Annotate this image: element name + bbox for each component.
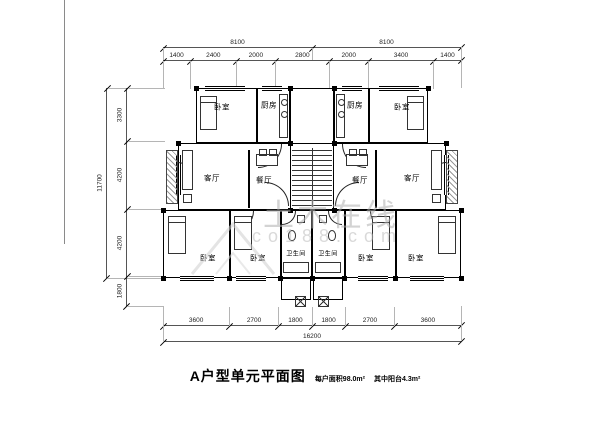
plan-title: A户型单元平面图 — [190, 366, 306, 386]
dim-segment: 8100 — [163, 47, 312, 48]
room-label-bedroom: 卧室 — [394, 102, 410, 113]
dim-label: 3600 — [395, 317, 461, 324]
window — [262, 86, 282, 91]
wall-bedroom-kitchen-divider-left — [256, 88, 258, 143]
dim-segment: 3400 — [368, 60, 434, 61]
dim-segment: 2000 — [329, 60, 368, 61]
sofa — [182, 150, 193, 190]
dim-label: 1800 — [279, 317, 312, 324]
dim-segment: 11700 — [106, 88, 107, 278]
dim-segment: 8100 — [312, 47, 461, 48]
dim-segment: 2000 — [237, 60, 276, 61]
dim-segment: 1400 — [163, 60, 190, 61]
room-label-dining: 餐厅 — [256, 175, 272, 186]
dim-segment: 3300 — [126, 88, 127, 141]
dim-segment: 1400 — [434, 60, 461, 61]
room-label-living: 客厅 — [204, 173, 220, 184]
dim-segment: 3600 — [395, 325, 461, 326]
dim-label: 1400 — [434, 52, 461, 59]
dim-label: 2800 — [275, 52, 329, 59]
bathtub — [315, 262, 341, 273]
floor-plan-drawing: 8100 8100 1400 2400 2000 2800 2000 3400 … — [0, 0, 610, 432]
title-block: A户型单元平面图 每户面积98.0m² 其中阳台4.3m² — [0, 366, 610, 386]
bed — [168, 216, 186, 254]
room-label-bedroom: 卧室 — [214, 102, 230, 113]
dim-label: 2700 — [345, 317, 395, 324]
room-label-bedroom: 卧室 — [408, 253, 424, 264]
dim-segment: 4200 — [126, 141, 127, 209]
sofa — [431, 150, 442, 190]
balcony-right — [446, 150, 458, 204]
kitchen-counter — [336, 94, 345, 138]
side-table — [183, 194, 192, 203]
dim-label: 2000 — [237, 52, 276, 59]
dining-table — [256, 154, 278, 166]
dim-label: 4200 — [117, 236, 124, 250]
dim-label: 4200 — [117, 168, 124, 182]
dining-table — [346, 154, 368, 166]
dim-label: 8100 — [312, 39, 461, 46]
room-label-bathroom: 卫生间 — [286, 249, 306, 258]
dim-label: 3400 — [368, 52, 434, 59]
plan-area-note: 每户面积98.0m² — [315, 374, 365, 384]
dim-label: 1400 — [163, 52, 190, 59]
wall-bedroom-kitchen-divider-right — [368, 88, 370, 143]
room-label-kitchen: 厨房 — [347, 100, 363, 111]
dim-label: 1800 — [117, 284, 124, 298]
room-label-dining: 餐厅 — [352, 175, 368, 186]
kitchen-counter — [279, 94, 288, 138]
wall-living-dining-divider-left — [248, 150, 250, 208]
shaft-x-box — [295, 296, 306, 307]
dim-label: 11700 — [97, 174, 104, 192]
window — [379, 86, 419, 91]
dim-label: 16200 — [163, 333, 461, 340]
sheet-frame-line — [64, 0, 65, 244]
room-label-bedroom: 卧室 — [358, 253, 374, 264]
plan-balcony-note: 其中阳台4.3m² — [374, 374, 420, 384]
dim-segment: 1800 — [279, 325, 312, 326]
room-label-bathroom: 卫生间 — [318, 249, 338, 258]
shaft-x-box — [318, 296, 329, 307]
dim-segment: 1800 — [126, 277, 127, 306]
column-markers — [194, 86, 199, 91]
dim-segment: 2700 — [229, 325, 279, 326]
room-label-living: 客厅 — [404, 173, 420, 184]
dim-label: 3600 — [163, 317, 229, 324]
dim-segment: 3600 — [163, 325, 229, 326]
dim-label: 3300 — [117, 107, 124, 121]
dim-segment: 2800 — [275, 60, 329, 61]
dim-label: 2700 — [229, 317, 279, 324]
balcony-left — [166, 150, 178, 204]
bathtub — [283, 262, 309, 273]
dim-label: 1800 — [312, 317, 345, 324]
side-table — [432, 194, 441, 203]
room-label-kitchen: 厨房 — [261, 100, 277, 111]
window — [410, 276, 444, 281]
dim-segment: 2700 — [345, 325, 395, 326]
dim-segment: 2400 — [190, 60, 236, 61]
window — [358, 276, 388, 281]
window — [205, 86, 245, 91]
window — [342, 86, 362, 91]
dim-label: 2400 — [190, 52, 236, 59]
watermark-domain: co188.com — [252, 226, 403, 247]
dim-label: 8100 — [163, 39, 312, 46]
dim-segment: 4200 — [126, 209, 127, 277]
dim-label: 2000 — [329, 52, 368, 59]
bed — [438, 216, 456, 254]
dim-segment: 1800 — [312, 325, 345, 326]
dim-segment: 16200 — [163, 341, 461, 342]
